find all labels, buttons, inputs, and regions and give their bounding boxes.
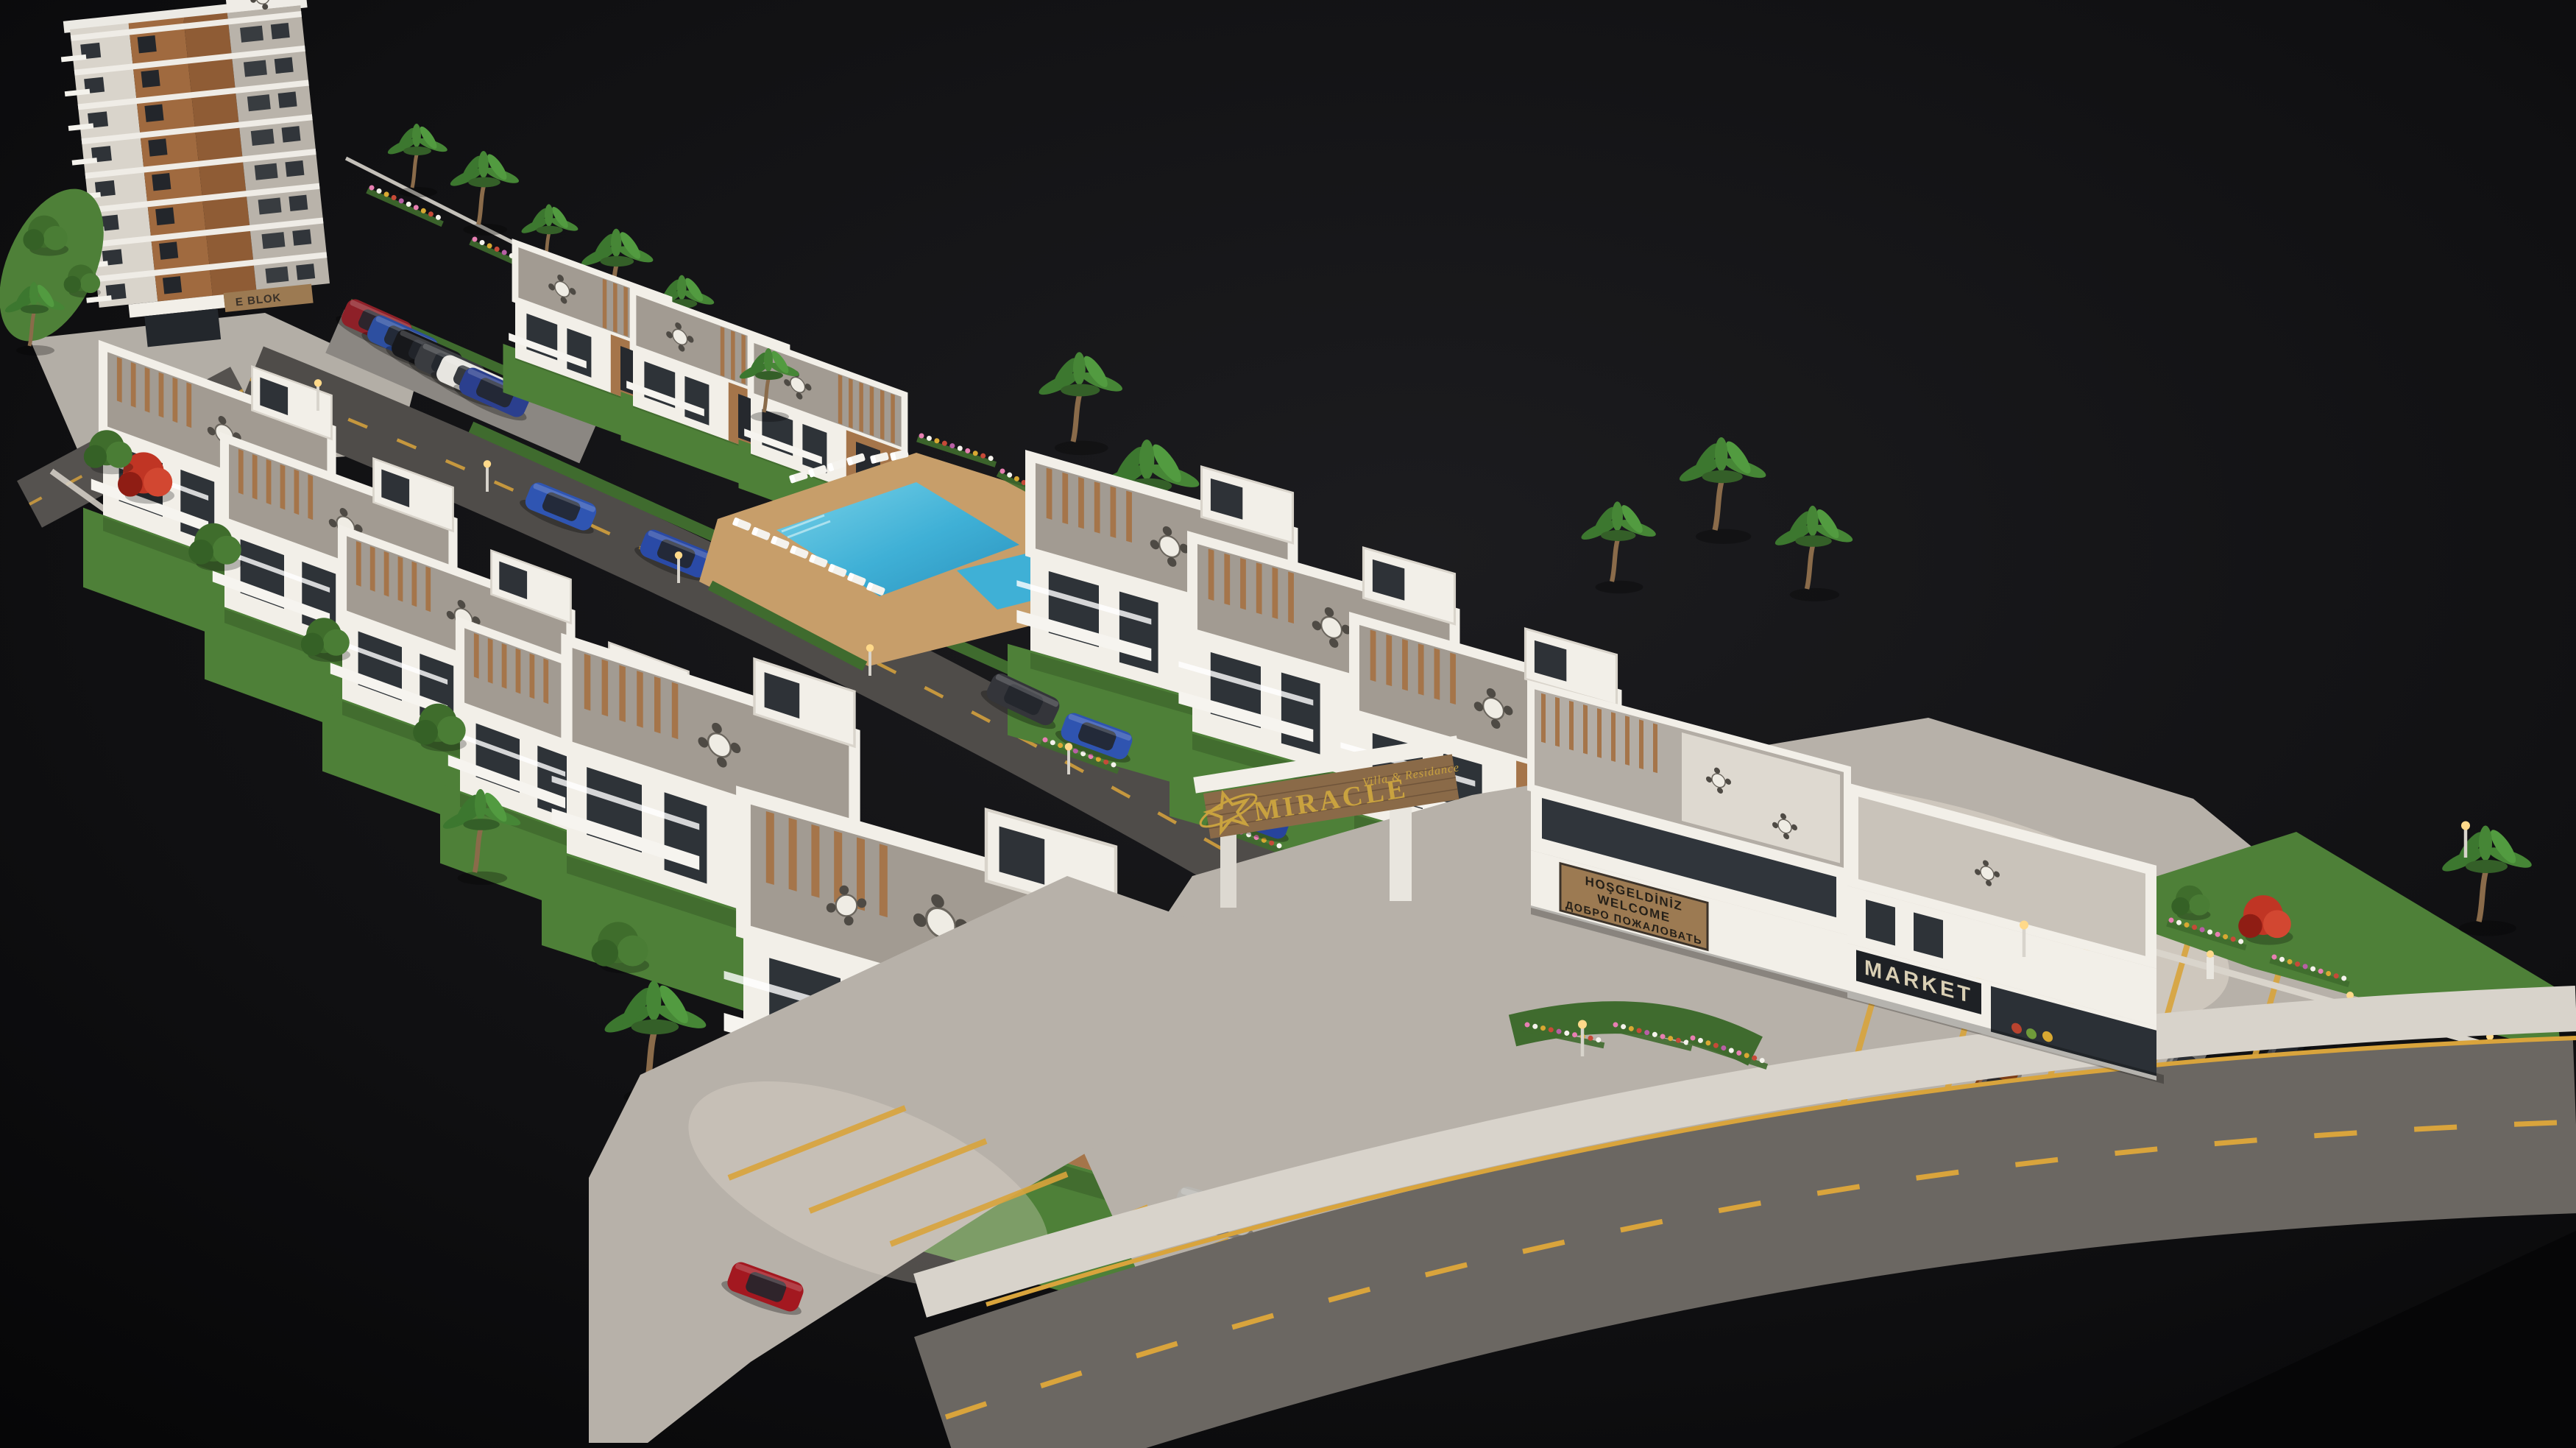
gate-column [1220,828,1236,908]
aerial-render: E BLOK [0,0,2576,1448]
apartment-tower: E BLOK [56,0,342,353]
render-stage: E BLOK [0,0,2576,1448]
